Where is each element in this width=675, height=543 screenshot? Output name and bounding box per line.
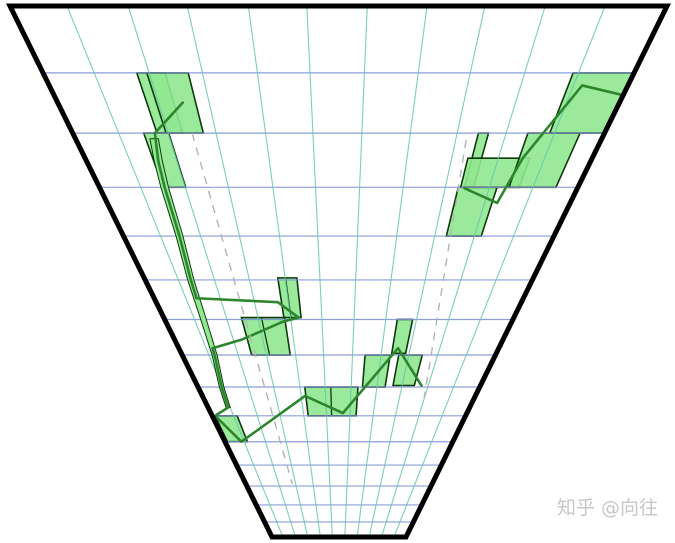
candle-r (509, 133, 580, 187)
candle-divider-e (331, 387, 332, 416)
candle-big-top-right (550, 73, 638, 133)
v-gridline (128, 6, 295, 537)
v-gridline (381, 6, 545, 537)
candle-g (392, 319, 413, 353)
v-gridline (357, 6, 427, 537)
candle-n (446, 187, 497, 236)
v-gridline (307, 6, 333, 537)
watermark: 知乎 @向往 (557, 497, 658, 519)
candles-layer (137, 73, 638, 442)
price-line-1 (155, 103, 422, 442)
funnel-chart: 知乎 @向往 (0, 0, 675, 543)
chart-content (43, 6, 637, 537)
dashed-trend-line-2 (424, 140, 466, 398)
v-gridline (369, 6, 485, 537)
v-gridline (345, 6, 367, 537)
v-gridline (187, 6, 308, 537)
v-gridline (394, 6, 605, 537)
funnel-chart-stage: 知乎 @向往 (0, 0, 675, 543)
candle-f (362, 355, 390, 387)
